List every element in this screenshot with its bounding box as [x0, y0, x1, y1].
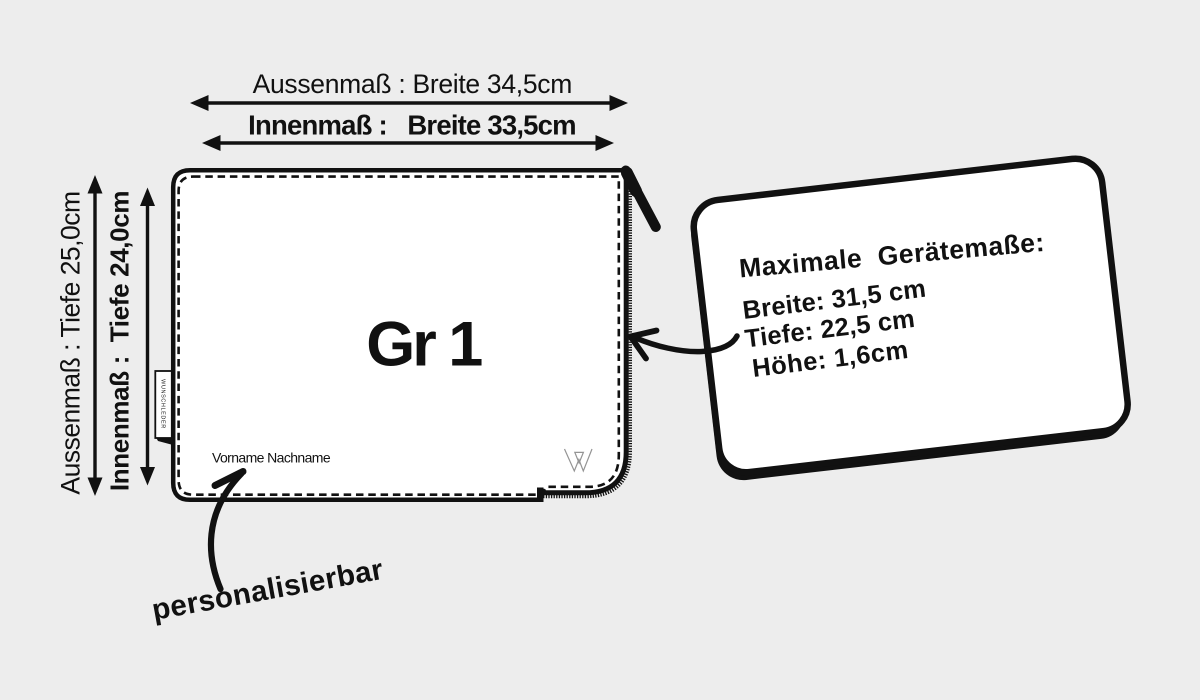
svg-text:Vorname Nachname: Vorname Nachname	[212, 449, 331, 465]
svg-text:Aussenmaß : Breite 34,5cm: Aussenmaß : Breite 34,5cm	[253, 69, 572, 99]
svg-text:Gr 1: Gr 1	[366, 310, 482, 380]
svg-text:Innenmaß : Tiefe 24,0cm: Innenmaß : Tiefe 24,0cm	[105, 191, 135, 491]
svg-text:Innenmaß : Breite 33,5cm: Innenmaß : Breite 33,5cm	[248, 109, 576, 140]
svg-text:WUNSCHLEDER: WUNSCHLEDER	[160, 379, 166, 429]
svg-text:Aussenmaß : Tiefe 25,0cm: Aussenmaß : Tiefe 25,0cm	[56, 191, 86, 494]
